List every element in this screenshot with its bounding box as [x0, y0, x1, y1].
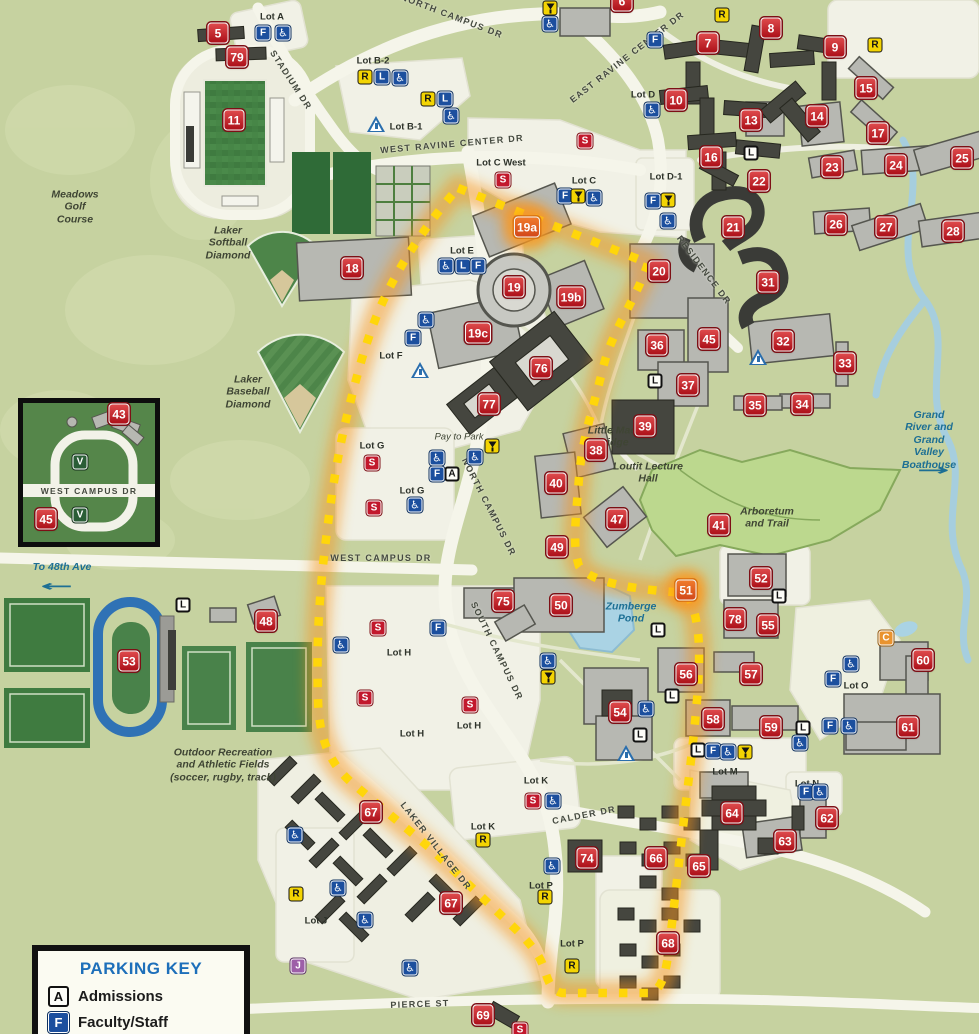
lot-label: Lot F	[379, 351, 402, 362]
pay-station-icon	[544, 672, 552, 682]
building-badge-14: 14	[807, 106, 828, 127]
building-badge-9: 9	[825, 37, 846, 58]
building-badge-43: 43	[109, 404, 130, 425]
lot-label: Lot M	[712, 767, 737, 778]
commuter-parking-badge: C	[879, 631, 894, 646]
resident-parking-badge: R	[715, 8, 730, 23]
road-label: PIERCE ST	[390, 998, 450, 1010]
building-badge-49: 49	[547, 537, 568, 558]
building-badge-48: 48	[256, 611, 277, 632]
faculty-staff-parking-badge: F	[406, 331, 421, 346]
road-label: STADIUM DR	[268, 48, 314, 111]
marker-triangle-icon	[617, 745, 635, 761]
building-badge-18: 18	[342, 258, 363, 279]
building-badge-35: 35	[745, 395, 766, 416]
parking-key-row-admissions: A Admissions	[48, 986, 234, 1007]
direction-arrow-left: ←	[41, 577, 74, 595]
pay-station-badge	[541, 670, 556, 685]
lot-label: Lot C West	[476, 158, 525, 169]
road-label: NORTH CAMPUS DR	[460, 456, 518, 557]
student-parking-badge: S	[365, 456, 380, 471]
building-badge-64: 64	[722, 803, 743, 824]
lot-label: Lot D	[631, 90, 655, 101]
building-badge-45: 45	[699, 329, 720, 350]
student-parking-badge: S	[358, 691, 373, 706]
accessible-parking-badge: ♿	[546, 794, 561, 809]
area-label: To 48th Ave	[33, 561, 92, 573]
parking-l-white-badge: L	[796, 721, 811, 736]
accessible-parking-badge: ♿	[393, 71, 408, 86]
accessible-parking-badge: ♿	[276, 26, 291, 41]
parking-key-row-faculty: F Faculty/Staff	[48, 1012, 234, 1033]
resident-parking-badge: R	[538, 890, 553, 905]
building-badge-47: 47	[607, 509, 628, 530]
building-badge-22: 22	[749, 171, 770, 192]
parking-l-white-badge: L	[744, 146, 759, 161]
accessible-parking-badge: ♿	[439, 259, 454, 274]
building-badge-36: 36	[647, 335, 668, 356]
building-badge-17: 17	[868, 123, 889, 144]
accessible-parking-badge: ♿	[419, 313, 434, 328]
resident-parking-badge: R	[289, 887, 304, 902]
building-badge-28: 28	[943, 221, 964, 242]
pay-station-badge	[738, 745, 753, 760]
campus-map: PARKING KEY A Admissions F Faculty/Staff…	[0, 0, 979, 1034]
building-badge-19c: 19c	[465, 323, 491, 344]
building-badge-59: 59	[761, 717, 782, 738]
admissions-badge: A	[48, 986, 69, 1007]
lot-label: Lot K	[524, 776, 548, 787]
pay-station-badge	[571, 189, 586, 204]
area-label: Arboretum and Trail	[740, 506, 794, 531]
lot-label: Lot H	[400, 729, 424, 740]
accessible-parking-badge: ♿	[358, 913, 373, 928]
faculty-staff-parking-badge: F	[646, 194, 661, 209]
building-badge-74: 74	[577, 848, 598, 869]
road-label: LAKER VILLAGE DR	[399, 800, 474, 892]
lot-label: Lot J	[305, 916, 328, 927]
faculty-staff-parking-badge: F	[706, 744, 721, 759]
building-badge-55: 55	[758, 615, 779, 636]
faculty-staff-parking-badge: F	[256, 26, 271, 41]
parking-l-white-badge: L	[176, 598, 191, 613]
pay-station-badge	[661, 193, 676, 208]
lot-label: Lot K	[471, 822, 495, 833]
faculty-staff-parking-badge: F	[799, 785, 814, 800]
building-badge-65: 65	[689, 856, 710, 877]
road-label: NORTH CAMPUS DR	[400, 0, 505, 40]
area-label: Zumberge Pond	[606, 601, 657, 626]
building-badge-57: 57	[741, 664, 762, 685]
building-badge-79: 79	[227, 47, 248, 68]
student-parking-badge: S	[578, 134, 593, 149]
marker-triangle-icon	[367, 116, 385, 132]
building-badge-45: 45	[36, 509, 57, 530]
road-label: CALDER DR	[551, 804, 616, 826]
building-badge-62: 62	[817, 808, 838, 829]
parking-key-title: PARKING KEY	[48, 959, 234, 979]
building-badge-69: 69	[473, 1005, 494, 1026]
lot-label: Lot E	[450, 246, 474, 257]
building-badge-5: 5	[208, 23, 229, 44]
lot-j-parking-badge: J	[291, 959, 306, 974]
building-badge-7: 7	[698, 33, 719, 54]
area-label: Pay to Park	[434, 431, 483, 442]
student-parking-badge: S	[367, 501, 382, 516]
area-label: Laker Softball Diamond	[206, 224, 251, 261]
area-label: Loutit Lecture Hall	[613, 461, 683, 486]
resident-parking-badge: R	[358, 70, 373, 85]
lot-label: Lot P	[560, 939, 584, 950]
faculty-staff-badge: F	[48, 1012, 69, 1033]
accessible-parking-badge: ♿	[444, 109, 459, 124]
building-badge-67: 67	[361, 802, 382, 823]
building-badge-25: 25	[952, 148, 973, 169]
accessible-parking-badge: ♿	[587, 191, 602, 206]
faculty-staff-parking-badge: F	[648, 33, 663, 48]
building-badge-41: 41	[709, 515, 730, 536]
building-badge-13: 13	[741, 110, 762, 131]
road-label: SOUTH CAMPUS DR	[469, 600, 525, 701]
lot-label: Lot G	[360, 441, 385, 452]
student-parking-badge: S	[496, 173, 511, 188]
building-badge-77: 77	[479, 394, 500, 415]
building-badge-21: 21	[723, 217, 744, 238]
faculty-staff-parking-badge: F	[430, 467, 445, 482]
area-label: Meadows Golf Course	[51, 188, 98, 225]
parking-l-white-badge: L	[665, 689, 680, 704]
marker-figure-icon	[375, 123, 378, 129]
building-badge-52: 52	[751, 568, 772, 589]
building-badge-19: 19	[504, 277, 525, 298]
lot-label: Lot G	[400, 486, 425, 497]
student-parking-badge: S	[463, 698, 478, 713]
building-badge-37: 37	[678, 375, 699, 396]
building-badge-53: 53	[119, 651, 140, 672]
building-badge-63: 63	[775, 831, 796, 852]
building-badge-11: 11	[224, 110, 245, 131]
area-label: Outdoor Recreation and Athletic Fields (…	[170, 746, 276, 783]
pay-station-icon	[488, 441, 496, 451]
road-label: WEST RAVINE CENTER DR	[380, 133, 524, 156]
accessible-parking-badge: ♿	[844, 657, 859, 672]
resident-parking-badge: R	[565, 959, 580, 974]
accessible-parking-badge: ♿	[543, 17, 558, 32]
building-badge-51: 51	[676, 580, 697, 601]
parking-l-white-badge: L	[648, 374, 663, 389]
building-badge-10: 10	[666, 90, 687, 111]
pay-station-icon	[741, 747, 749, 757]
accessible-parking-badge: ♿	[541, 654, 556, 669]
building-badge-58: 58	[703, 709, 724, 730]
building-badge-75: 75	[493, 591, 514, 612]
building-badge-66: 66	[646, 848, 667, 869]
faculty-staff-parking-badge: F	[431, 621, 446, 636]
accessible-parking-badge: ♿	[288, 828, 303, 843]
building-badge-38: 38	[586, 440, 607, 461]
resident-parking-badge: R	[476, 833, 491, 848]
marker-figure-icon	[625, 752, 628, 758]
building-badge-6: 6	[612, 0, 633, 12]
lot-label: Lot H	[387, 648, 411, 659]
marker-figure-icon	[757, 356, 760, 362]
direction-arrow-right: →	[917, 461, 950, 479]
building-badge-16: 16	[701, 147, 722, 168]
resident-parking-badge: R	[868, 38, 883, 53]
lot-label: Lot H	[457, 721, 481, 732]
parking-l-white-badge: L	[691, 743, 706, 758]
building-badge-40: 40	[546, 473, 567, 494]
parking-l-badge: L	[456, 259, 471, 274]
student-parking-badge: S	[526, 794, 541, 809]
accessible-parking-badge: ♿	[403, 961, 418, 976]
building-badge-78: 78	[725, 609, 746, 630]
visitor-parking-badge: V	[73, 455, 88, 470]
accessible-parking-badge: ♿	[331, 881, 346, 896]
building-badge-33: 33	[835, 353, 856, 374]
lot-label: Lot D-1	[650, 172, 683, 183]
pay-station-icon	[546, 3, 554, 13]
marker-figure-icon	[419, 369, 422, 375]
accessible-parking-badge: ♿	[813, 785, 828, 800]
lot-label: Lot C	[572, 176, 596, 187]
lot-label: Lot A	[260, 12, 284, 23]
lot-label: Lot O	[844, 681, 869, 692]
faculty-staff-label: Faculty/Staff	[78, 1014, 168, 1031]
building-badge-76: 76	[531, 358, 552, 379]
marker-triangle-icon	[411, 362, 429, 378]
faculty-staff-parking-badge: F	[471, 259, 486, 274]
accessible-parking-badge: ♿	[639, 702, 654, 717]
visitor-parking-badge: V	[73, 508, 88, 523]
building-badge-27: 27	[876, 217, 897, 238]
accessible-parking-badge: ♿	[842, 719, 857, 734]
admissions-label: Admissions	[78, 988, 163, 1005]
student-parking-badge: S	[513, 1023, 528, 1034]
faculty-staff-parking-badge: F	[826, 672, 841, 687]
accessible-parking-badge: ♿	[661, 214, 676, 229]
building-badge-68: 68	[658, 933, 679, 954]
building-badge-67: 67	[441, 893, 462, 914]
building-badge-50: 50	[551, 595, 572, 616]
lot-label: Lot B-2	[357, 56, 390, 67]
accessible-parking-badge: ♿	[430, 451, 445, 466]
student-parking-badge: S	[371, 621, 386, 636]
accessible-parking-badge: ♿	[408, 498, 423, 513]
road-label: RESIDENCE DR	[675, 234, 733, 307]
building-badge-19b: 19b	[558, 287, 585, 308]
accessible-parking-badge: ♿	[468, 450, 483, 465]
road-label: WEST CAMPUS DR	[41, 486, 138, 496]
building-badge-15: 15	[856, 78, 877, 99]
area-label: Laker Baseball Diamond	[226, 373, 271, 410]
building-badge-54: 54	[610, 702, 631, 723]
road-label: WEST CAMPUS DR	[330, 553, 431, 563]
parking-key: PARKING KEY A Admissions F Faculty/Staff	[32, 945, 250, 1034]
lot-label: Lot B-1	[390, 122, 423, 133]
pay-station-icon	[574, 191, 582, 201]
building-badge-61: 61	[898, 717, 919, 738]
pay-station-badge	[485, 439, 500, 454]
faculty-staff-parking-badge: F	[823, 719, 838, 734]
building-badge-8: 8	[761, 18, 782, 39]
accessible-parking-badge: ♿	[793, 736, 808, 751]
building-badge-60: 60	[913, 650, 934, 671]
accessible-parking-badge: ♿	[721, 745, 736, 760]
parking-l-badge: L	[375, 70, 390, 85]
parking-l-white-badge: L	[633, 728, 648, 743]
building-badge-23: 23	[822, 157, 843, 178]
accessible-parking-badge: ♿	[334, 638, 349, 653]
building-badge-34: 34	[792, 394, 813, 415]
building-badge-31: 31	[758, 272, 779, 293]
parking-l-white-badge: L	[651, 623, 666, 638]
pay-station-icon	[664, 195, 672, 205]
resident-parking-badge: R	[421, 92, 436, 107]
accessible-parking-badge: ♿	[645, 103, 660, 118]
parking-l-white-badge: L	[772, 589, 787, 604]
accessible-parking-badge: ♿	[545, 859, 560, 874]
building-badge-32: 32	[773, 331, 794, 352]
admissions-parking-badge: A	[445, 467, 460, 482]
building-badge-24: 24	[886, 155, 907, 176]
building-badge-39: 39	[635, 416, 656, 437]
building-badge-19a: 19a	[514, 217, 540, 238]
building-badge-26: 26	[826, 214, 847, 235]
building-badge-56: 56	[676, 664, 697, 685]
parking-l-badge: L	[438, 92, 453, 107]
marker-triangle-icon	[749, 349, 767, 365]
pay-station-badge	[543, 1, 558, 16]
building-badge-20: 20	[649, 261, 670, 282]
